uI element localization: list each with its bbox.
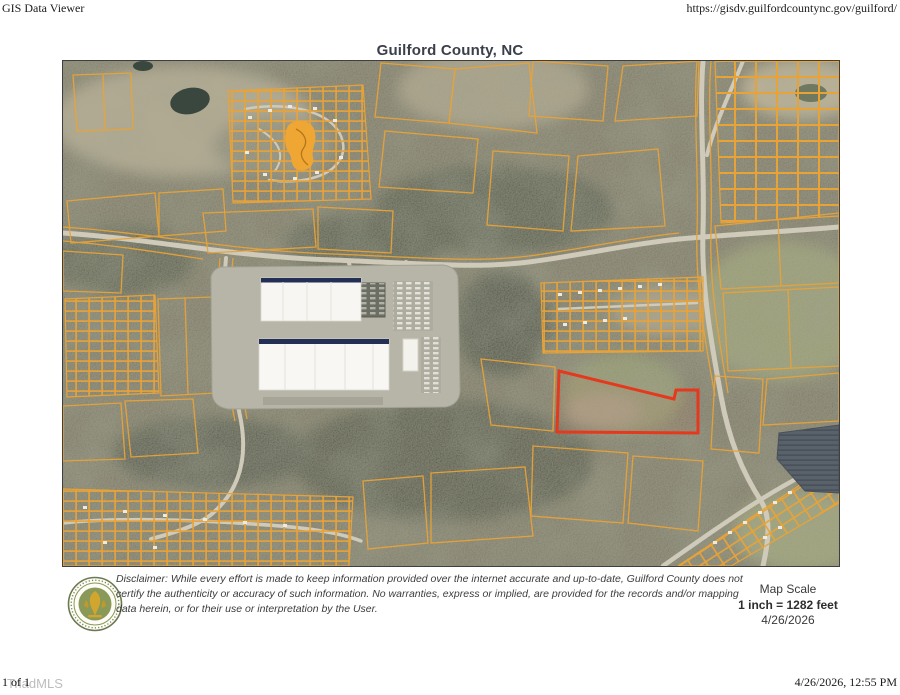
map-scale-value: 1 inch = 1282 feet [733, 598, 843, 614]
map-scale-date: 4/26/2026 [733, 613, 843, 629]
warehouse-building-south [259, 339, 389, 390]
warehouse-building-north [261, 278, 361, 321]
print-header-url: https://gisdv.guilfordcountync.gov/guilf… [686, 1, 897, 16]
aerial-parcel-map [62, 60, 840, 567]
map-footer-bar: Disclaimer: While every effort is made t… [62, 568, 838, 638]
map-scale-block: Map Scale 1 inch = 1282 feet 4/26/2026 [733, 582, 843, 629]
disclaimer-text: Disclaimer: While every effort is made t… [116, 572, 744, 618]
print-header-app-title: GIS Data Viewer [2, 1, 84, 16]
map-title: Guilford County, NC [0, 42, 900, 59]
page-number: 1 of 1 [2, 675, 30, 690]
aerial-map-canvas [63, 61, 839, 566]
map-scale-label: Map Scale [733, 582, 843, 598]
print-timestamp: 4/26/2026, 12:55 PM [795, 675, 897, 690]
warehouse-complex [211, 265, 460, 409]
warehouse-building-small [403, 339, 418, 371]
guilford-county-seal-icon [67, 576, 123, 632]
